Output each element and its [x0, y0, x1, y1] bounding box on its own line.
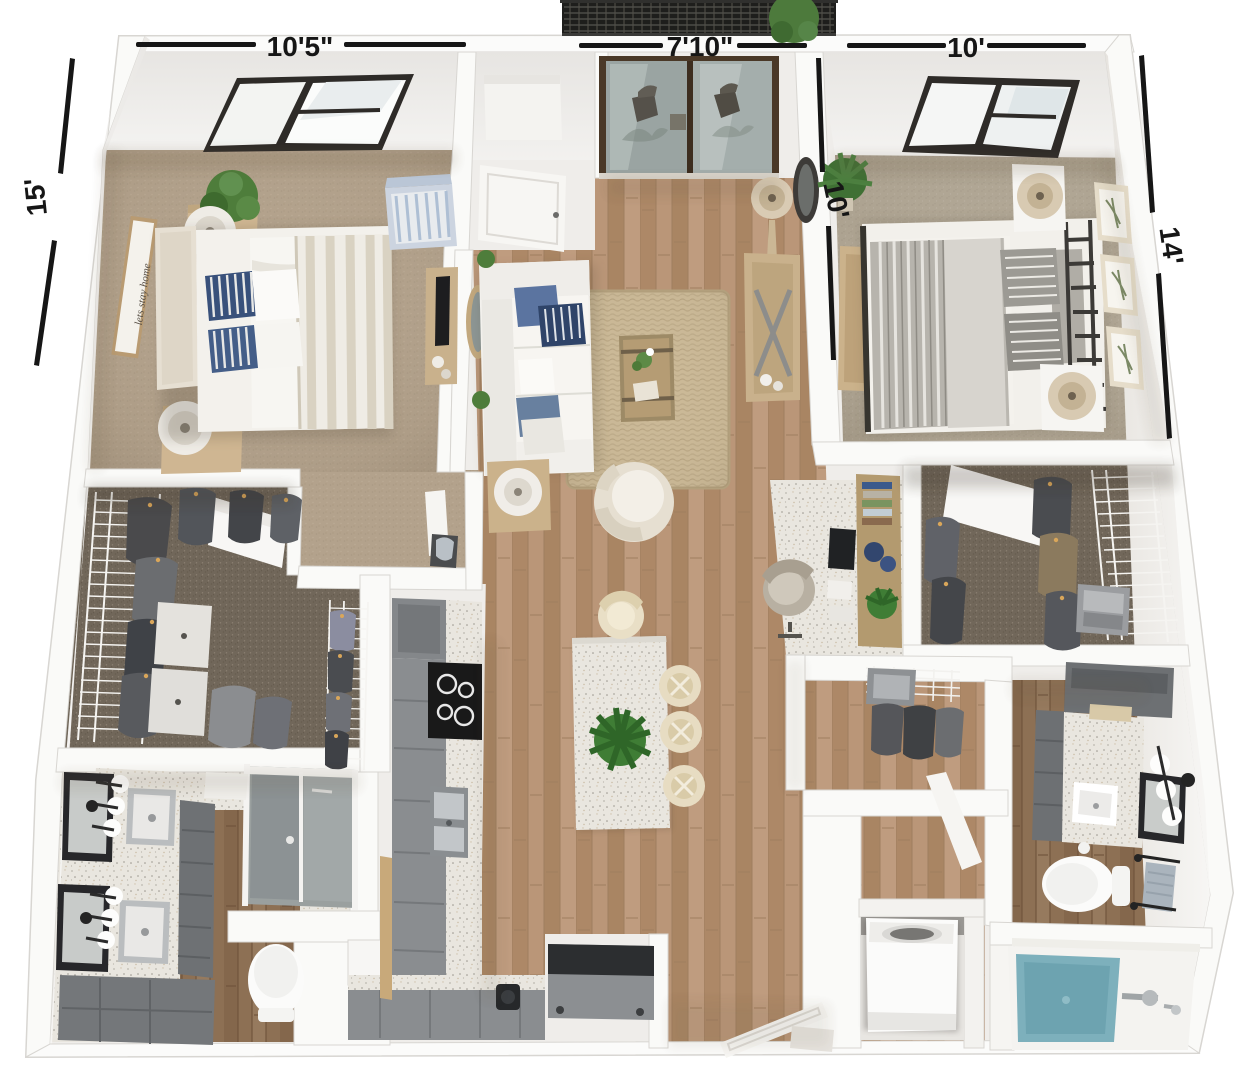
svg-text:10'5": 10'5"	[267, 31, 334, 62]
svg-text:14': 14'	[1153, 225, 1189, 267]
svg-text:10': 10'	[947, 32, 985, 63]
svg-text:7'10": 7'10"	[667, 31, 734, 62]
svg-text:15': 15'	[18, 177, 53, 218]
